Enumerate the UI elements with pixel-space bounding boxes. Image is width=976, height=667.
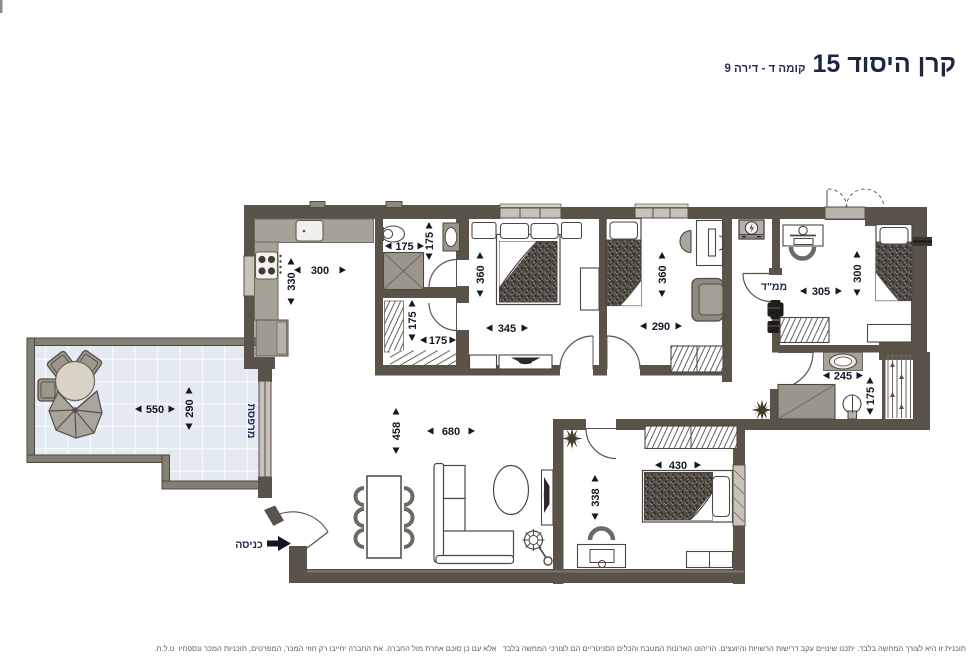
svg-text:290: 290 (652, 321, 670, 333)
svg-text:ממ"ד: ממ"ד (761, 281, 787, 293)
svg-text:345: 345 (498, 323, 516, 335)
svg-text:360: 360 (475, 265, 487, 283)
svg-text:175: 175 (865, 387, 877, 405)
svg-text:430: 430 (669, 460, 687, 472)
svg-text:290: 290 (184, 399, 196, 417)
svg-text:כניסה: כניסה (235, 539, 263, 551)
svg-text:300: 300 (852, 264, 864, 282)
svg-text:175: 175 (424, 232, 436, 250)
svg-text:680: 680 (442, 426, 460, 438)
svg-text:מרפסת: מרפסת (245, 404, 257, 439)
svg-text:360: 360 (657, 265, 669, 283)
svg-text:550: 550 (146, 404, 164, 416)
svg-text:175: 175 (429, 335, 447, 347)
svg-text:245: 245 (834, 371, 852, 383)
svg-text:305: 305 (812, 286, 830, 298)
svg-text:338: 338 (590, 488, 602, 506)
svg-text:175: 175 (395, 241, 413, 253)
svg-text:458: 458 (391, 422, 403, 440)
svg-text:300: 300 (311, 265, 329, 277)
svg-text:175: 175 (407, 311, 419, 329)
svg-text:330: 330 (286, 272, 298, 290)
